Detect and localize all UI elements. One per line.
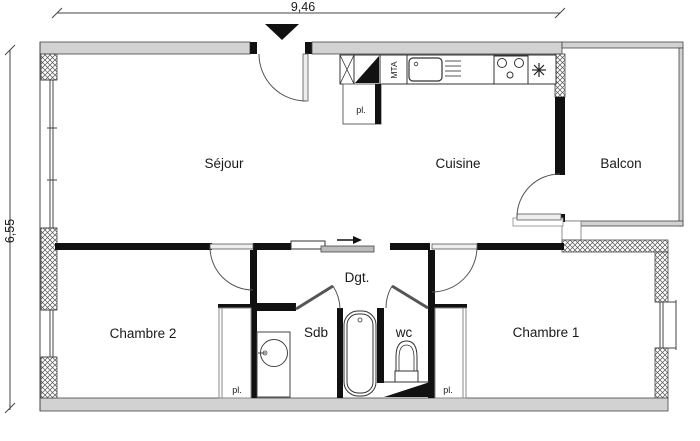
dimension-left: 6,55 [3,45,17,413]
toilet-icon [395,341,418,382]
tub-niche-west-wall [337,308,343,398]
sliding-direction-arrow-icon [353,236,362,244]
balcony-door [517,174,561,220]
bottom-wall [40,398,668,411]
wc-east-wall [428,250,435,398]
kitchen-sink-icon [409,58,442,81]
mid-wall-seg-c [390,243,430,250]
mid-wall-seg-a [55,243,212,250]
shaft-triangle-icon [354,55,380,84]
wc-fixtures [384,341,430,397]
mta-box: MTA [380,55,407,84]
bathroom-door [296,286,340,309]
bedroom1-door [432,244,477,292]
toilet-label: wc [395,325,413,340]
bedroom2-label: Chambre 2 [110,326,177,341]
wc-west-wall [377,308,384,383]
cuisine-label: Cuisine [435,156,480,171]
bedroom1-closet: pl. [435,304,467,398]
entry-closet-label: pl. [356,105,366,115]
bedroom2-door [210,244,253,290]
floor-plan: 9,46 6,55 [0,0,700,441]
entrance-jamb-left [250,42,257,54]
doors [210,54,561,309]
mid-wall-seg-b [253,243,291,250]
sejour-window [41,80,57,228]
hallway-label: Dgt. [345,270,370,285]
east-wall-band [562,240,668,252]
balcony-parapet-right [679,48,683,226]
sliding-door-pocket [291,241,325,249]
mta-label: MTA [389,61,399,79]
interior-walls [55,243,564,398]
bedroom1-window [655,300,676,350]
wc-door [386,286,428,308]
dimension-height-label: 6,55 [3,219,17,243]
balcon-label: Balcon [600,156,641,171]
left-wall-pier-top [41,54,57,80]
bathroom-fixtures [257,311,376,397]
top-wall-right [312,42,562,54]
washbasin-icon [257,332,290,397]
right-wall-pier-bottom [655,348,668,398]
kitchen-fixtures: MTA [340,55,556,84]
floor-plan-page: 9,46 6,55 [0,0,700,441]
entrance-arrow-icon [265,24,299,40]
dimension-width-label: 9,46 [291,0,315,14]
bedroom1-closet-label: pl. [443,385,453,395]
balcony-parapet-top [562,42,683,48]
bedroom2-closet-label: pl. [232,385,242,395]
left-wall-pier-middle [41,228,57,310]
left-wall-pier-bottom [41,357,57,398]
bedroom1-label: Chambre 1 [513,325,580,340]
fridge-star-icon [532,63,546,77]
entrance-jamb-right [305,42,312,54]
entrance-door [259,54,308,101]
right-wall-pier-top [655,252,668,302]
top-wall-left [40,42,250,54]
bathroom-north-wall [250,303,296,311]
dimension-top: 9,46 [52,0,565,18]
bedroom2-window [41,310,57,357]
bedroom2-closet: pl. [218,304,252,398]
bathtub-icon [344,311,376,396]
bathroom-label: Sdb [304,325,328,340]
balcony-pillar [562,221,581,240]
wc-duct-triangle-icon [384,382,430,397]
sejour-label: Séjour [204,156,244,171]
mid-wall-seg-d [477,243,564,250]
kitchen-east-wall [555,97,565,175]
entry-closet: pl. [343,84,381,124]
sliding-door-panel [321,246,374,252]
vent-duct-icon [340,55,354,84]
sliding-door [291,236,374,252]
